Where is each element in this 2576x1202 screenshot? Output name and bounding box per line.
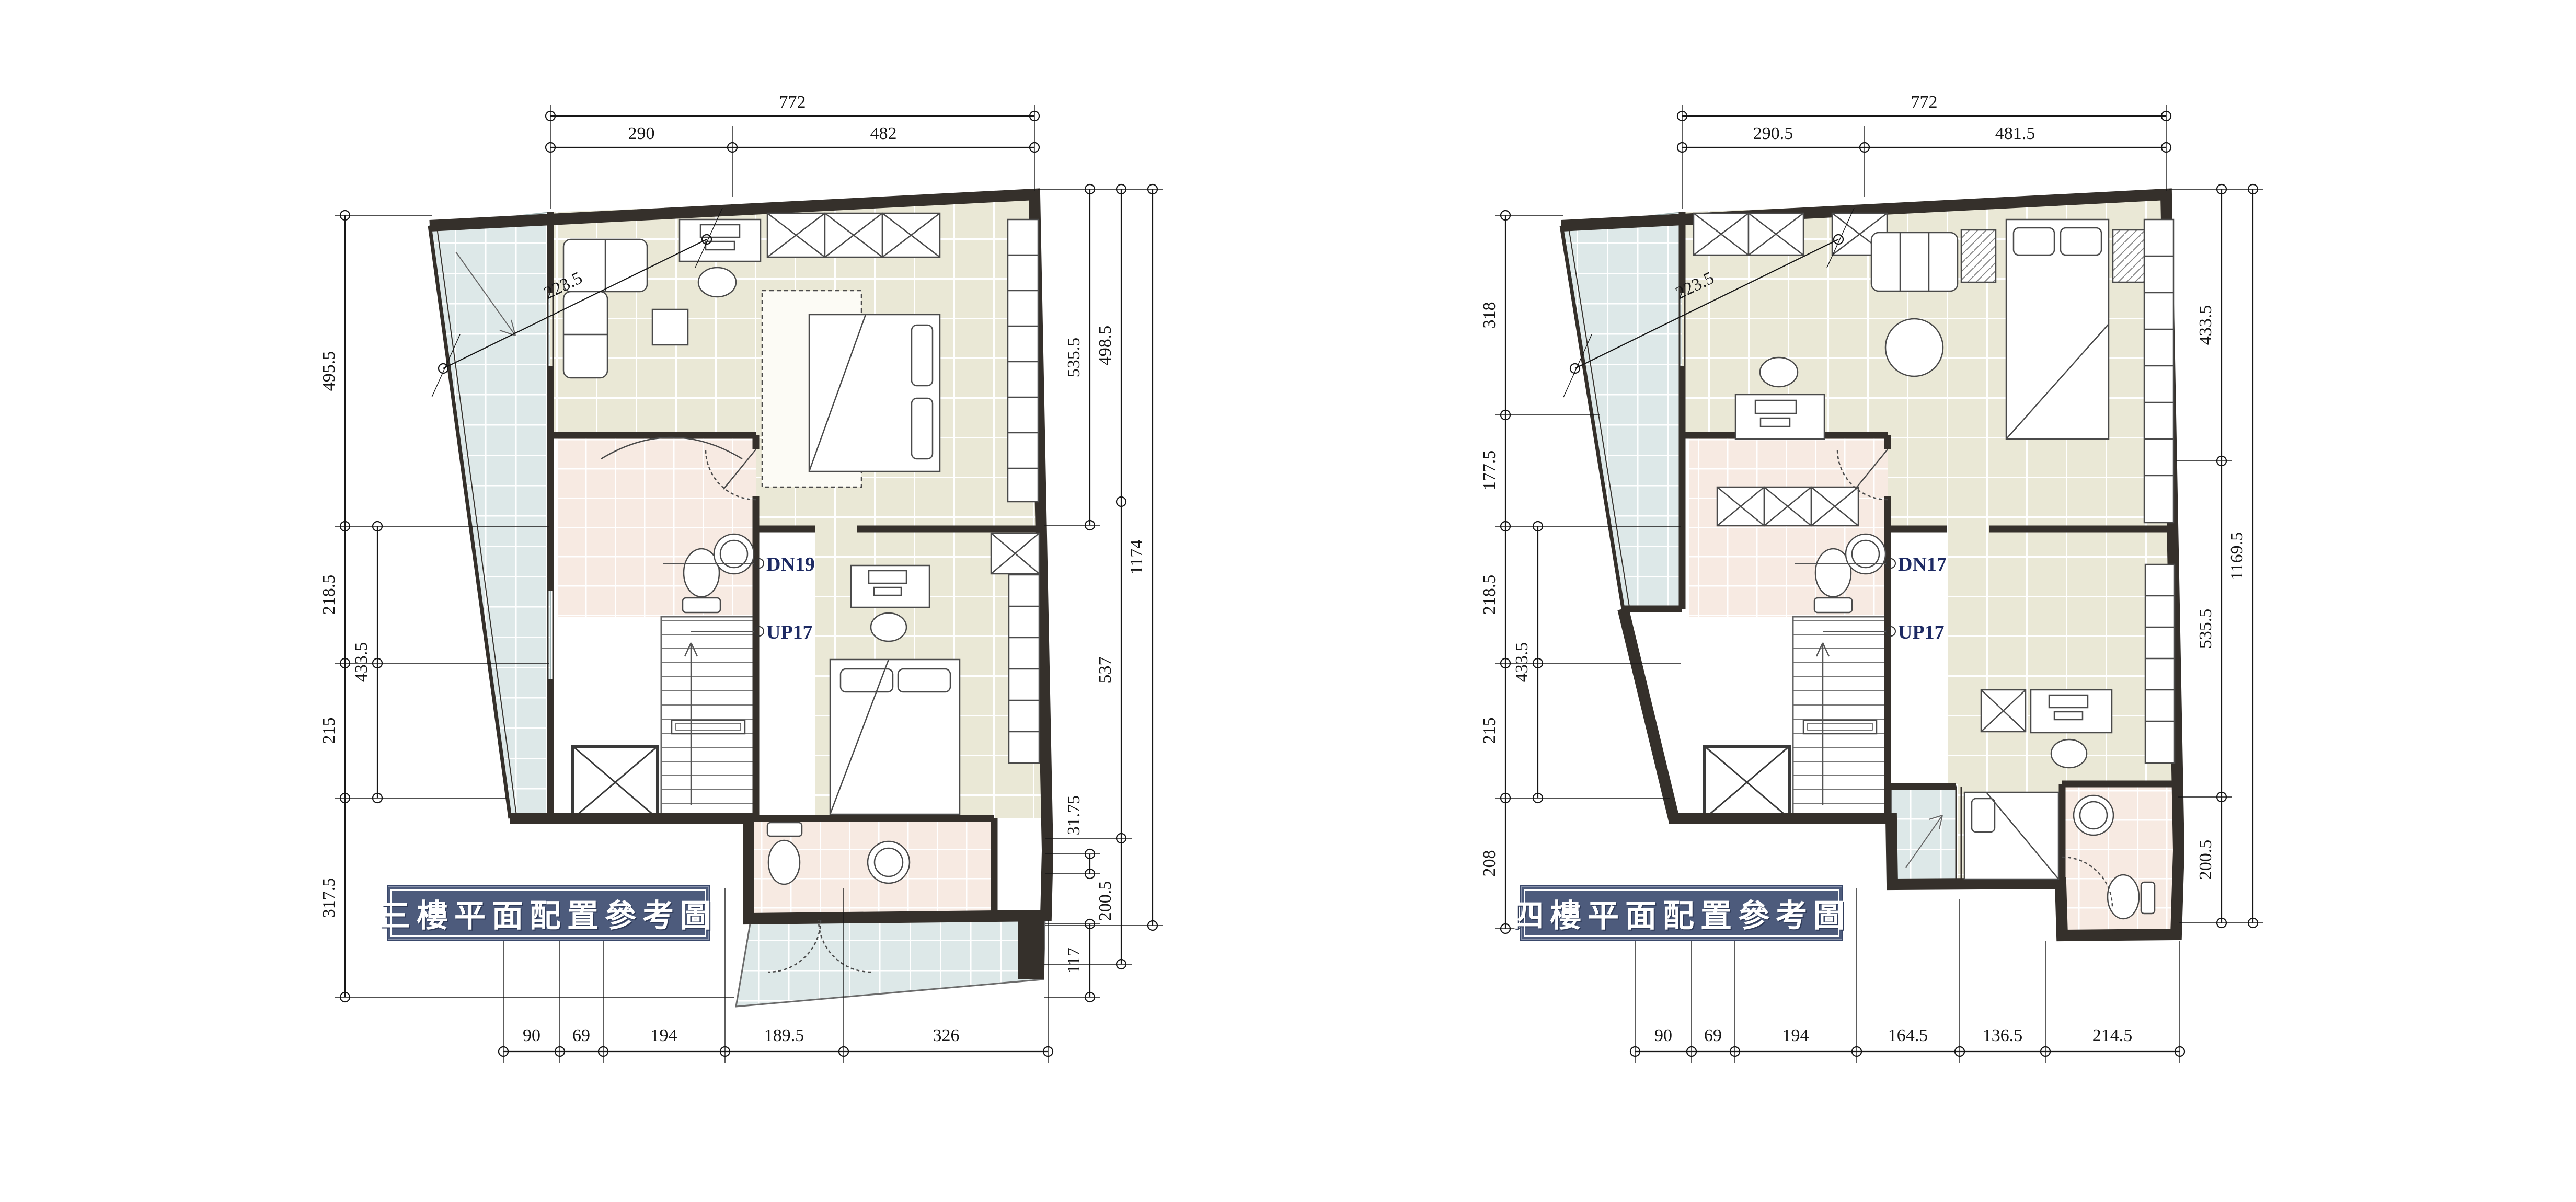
stairwell-4f [1793,617,1888,818]
dim-label: 215 [1480,718,1499,744]
stair-down-label: DN19 [766,553,815,575]
desk-chair-b2-4f [2051,739,2087,768]
dim-label: 433.5 [352,642,371,683]
dim-label: 290 [628,124,655,143]
toilet2-tank-4f [2141,882,2155,914]
dim-label: 772 [1911,93,1938,112]
desk-chair-2 [871,613,906,641]
dim-label: 215 [319,718,339,744]
mat-hatch-2 [2113,230,2147,282]
plan-title-plate-3f: 三樓平面配置參考圖 [387,885,710,941]
dim-label: 117 [1064,947,1084,974]
balcony-wall-chunk [1018,917,1044,979]
balcony-bottom [736,918,1045,1007]
dim-label: 495.5 [319,351,339,391]
toilet-tank [683,598,720,612]
dim-label: 214.5 [2092,1026,2133,1045]
stair-up-label-4f: UP17 [1898,621,1945,643]
stairwell [661,617,756,818]
dim-label: 200.5 [2196,840,2215,880]
balcony-left [430,212,550,818]
dim-label: 535.5 [1064,338,1084,378]
dim-label: 481.5 [1995,124,2035,143]
toilet2-bowl [768,840,800,884]
dim-label: 218.5 [319,575,339,615]
mat-hatch-1 [1961,230,1996,282]
wardrobe-xbox-row [767,213,940,257]
bed-double [809,315,940,471]
dim-label: 189.5 [764,1026,804,1045]
dim-label: 136.5 [1983,1026,2023,1045]
dim-label: 31.75 [1064,795,1084,836]
dim-label: 1174 [1127,540,1146,575]
dim-label: 200.5 [1096,881,1115,921]
sofa-4f [1871,233,1958,291]
dim-label: 208 [1480,850,1499,877]
dim-label: 90 [1654,1026,1672,1045]
dim-label: 537 [1096,657,1115,684]
balcony-left-4f [1561,212,1682,609]
closet-strip-2 [1009,575,1039,763]
dim-label: 194 [1782,1026,1809,1045]
desk-computer [680,219,761,261]
dim-label: 218.5 [1480,575,1499,615]
dim-label: 772 [779,93,806,112]
desk-computer-4f [1735,395,1824,439]
dim-label: 164.5 [1888,1026,1928,1045]
desk-computer-b2-4f [2031,690,2112,733]
dim-label: 177.5 [1480,450,1499,491]
bathroom1-floor [558,435,756,617]
toilet-tank-4f [1814,598,1852,612]
toilet2-tank [767,823,802,836]
closet-strip-b2-4f [2145,564,2175,763]
plan-title-3f: 三樓平面配置參考圖 [379,891,718,936]
balcony-small-4f [1891,787,1956,888]
wardrobe-xbox-row-4f [1694,213,1887,255]
stair-down-label-4f: DN17 [1898,553,1947,575]
side-table [652,309,688,345]
wardrobe-xbox-mid-4f [1717,487,1858,526]
bed-single-4f [2006,219,2109,439]
bed-2 [830,660,960,814]
dim-label: 290.5 [1753,124,1793,143]
dim-label: 69 [1704,1026,1722,1045]
dim-label: 318 [1480,302,1499,329]
floor-plan-canvas: DN19 UP17 [0,0,2576,1202]
bed-2-4f [1964,792,2058,879]
toilet2-bowl-4f [2108,875,2139,919]
dim-label: 535.5 [2196,609,2215,649]
dim-label: 90 [523,1026,540,1045]
dim-label: 498.5 [1096,326,1115,366]
dim-label: 482 [870,124,897,143]
desk-computer-2 [851,565,929,607]
dim-label: 194 [651,1026,677,1045]
dim-label: 433.5 [2196,305,2215,345]
dim-label: 317.5 [319,878,339,918]
dim-label: 326 [933,1026,960,1045]
round-table-4f [1885,319,1943,376]
desk-chair [698,268,736,297]
drawing-sheet: DN19 UP17 [0,0,2576,1202]
desk-chair-4f [1760,357,1798,387]
plan-title-4f: 四樓平面配置參考圖 [1512,891,1851,936]
closet-strip-right [1008,219,1038,502]
plan-title-plate-4f: 四樓平面配置參考圖 [1520,885,1843,941]
dim-label: 433.5 [1512,642,1532,683]
closet-strip-right-4f [2144,219,2173,523]
stair-up-label: UP17 [766,621,813,643]
dim-label: 69 [572,1026,590,1045]
dim-label: 1169.5 [2227,532,2247,580]
